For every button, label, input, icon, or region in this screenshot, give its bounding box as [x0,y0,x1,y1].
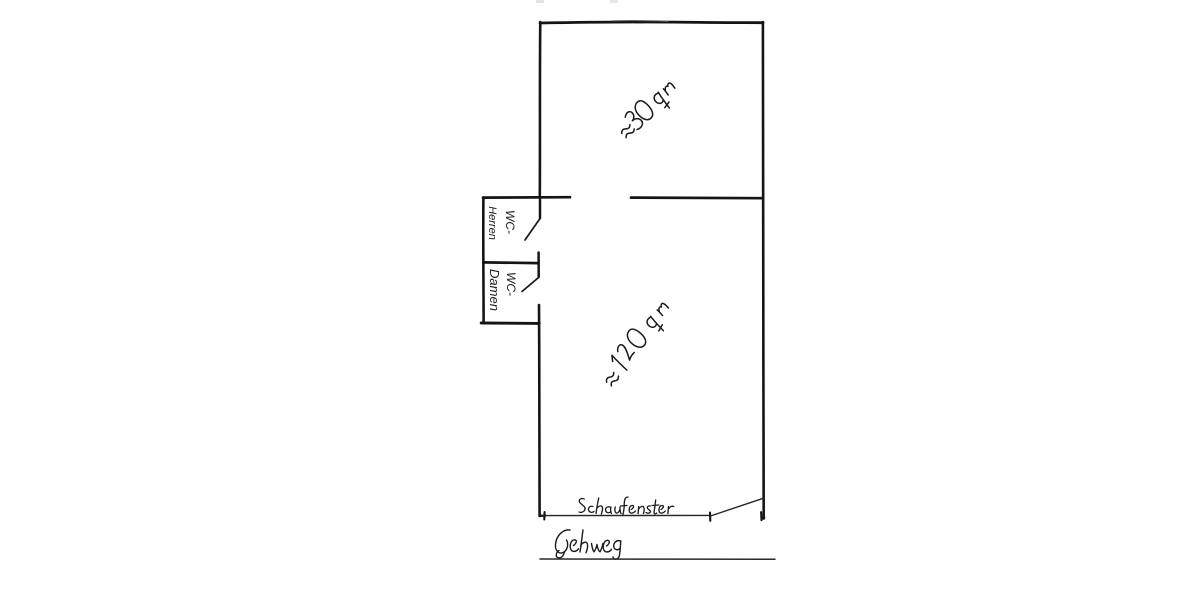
svg-text:WC-: WC- [504,272,518,296]
svg-text:Herren: Herren [486,206,498,240]
svg-text:WC-: WC- [503,210,517,234]
svg-text:Damen: Damen [487,269,502,311]
